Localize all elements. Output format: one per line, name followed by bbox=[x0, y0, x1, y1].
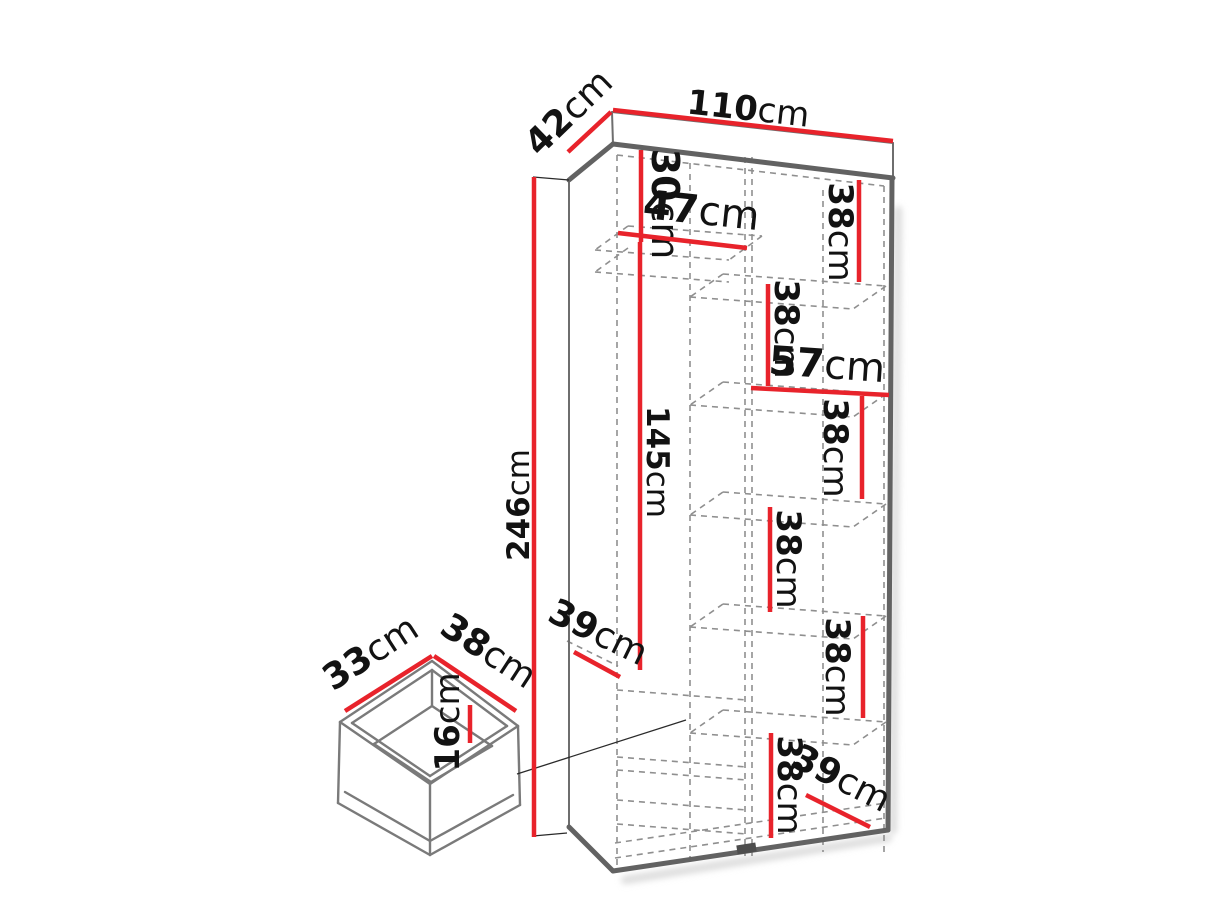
dimension-label-left-shelf-depth: 39cm bbox=[542, 591, 654, 674]
dimension-right-shelf-3: 38cm bbox=[815, 396, 862, 499]
drawer-leader-line bbox=[517, 720, 686, 774]
dimension-right-shelf-4: 38cm bbox=[768, 507, 808, 612]
hidden-edge bbox=[617, 770, 747, 780]
dimension-drawer-height: 16cm bbox=[428, 672, 470, 771]
hidden-edge bbox=[617, 690, 747, 700]
dimension-annotations: 110cm42cm246cm30cm47cm145cm39cm38cm38cm5… bbox=[316, 62, 898, 838]
hidden-edge bbox=[595, 226, 628, 250]
dimension-label-overall-width: 110cm bbox=[685, 82, 811, 135]
drawer-edge bbox=[352, 723, 430, 776]
wardrobe-dimension-diagram: 110cm42cm246cm30cm47cm145cm39cm38cm38cm5… bbox=[0, 0, 1214, 911]
dimension-overall-width: 110cm bbox=[613, 82, 893, 141]
dimension-right-section-width: 57cm bbox=[751, 338, 889, 395]
drawer-edge bbox=[518, 726, 520, 805]
dimension-label-right-shelf-3: 38cm bbox=[815, 398, 855, 497]
drawer-edge bbox=[345, 792, 430, 841]
hidden-edge bbox=[690, 274, 723, 297]
drawer-edge bbox=[430, 805, 520, 855]
hidden-edge bbox=[690, 604, 723, 627]
drop-shadow bbox=[893, 210, 898, 830]
cabinet-edge bbox=[612, 112, 613, 144]
hidden-edge bbox=[853, 504, 886, 527]
cabinet-edge-front bbox=[569, 144, 613, 180]
drawer-edge bbox=[374, 744, 431, 782]
hidden-edge bbox=[853, 394, 886, 417]
dimension-label-drawer-height: 16cm bbox=[428, 672, 468, 771]
door-gap-notch bbox=[737, 847, 756, 850]
drawer-edge bbox=[338, 722, 340, 803]
dimension-label-right-shelf-5: 38cm bbox=[817, 617, 857, 716]
dimension-label-right-shelf-4: 38cm bbox=[768, 509, 808, 608]
dimension-left-shelf-depth: 39cm bbox=[542, 591, 654, 677]
drop-shadow bbox=[625, 838, 888, 880]
dimension-hanging-height: 145cm bbox=[639, 242, 675, 670]
diagram-stage: cm 110cm42cm246cm30cm47cm145cm39cm38cm38… bbox=[0, 0, 1214, 911]
hidden-edge bbox=[853, 722, 886, 745]
hidden-edge bbox=[853, 286, 886, 309]
hidden-edge bbox=[595, 272, 729, 282]
extension-line bbox=[533, 833, 567, 836]
hidden-edge bbox=[617, 800, 747, 810]
drawer-edge bbox=[374, 706, 432, 744]
hidden-edge bbox=[690, 710, 723, 733]
dimension-right-shelf-5: 38cm bbox=[817, 616, 863, 718]
dimension-label-right-shelf-1: 38cm bbox=[820, 182, 860, 281]
drawer-edge bbox=[430, 795, 513, 841]
dimension-label-right-section-width: 57cm bbox=[767, 338, 887, 392]
drawer-edge bbox=[338, 803, 430, 855]
cabinet-edge-front bbox=[569, 827, 613, 871]
dimension-right-shelf-1: 38cm bbox=[820, 180, 860, 282]
dimension-label-hanging-height: 145cm bbox=[639, 406, 675, 518]
dimension-label-overall-height: 246cm bbox=[501, 449, 537, 561]
hidden-edge bbox=[690, 492, 723, 515]
hidden-edge bbox=[617, 757, 747, 767]
hidden-edge bbox=[690, 382, 723, 405]
drawer-edge bbox=[340, 722, 430, 784]
dimension-drawer-width: 33cm bbox=[316, 608, 432, 711]
extension-line bbox=[533, 177, 569, 180]
